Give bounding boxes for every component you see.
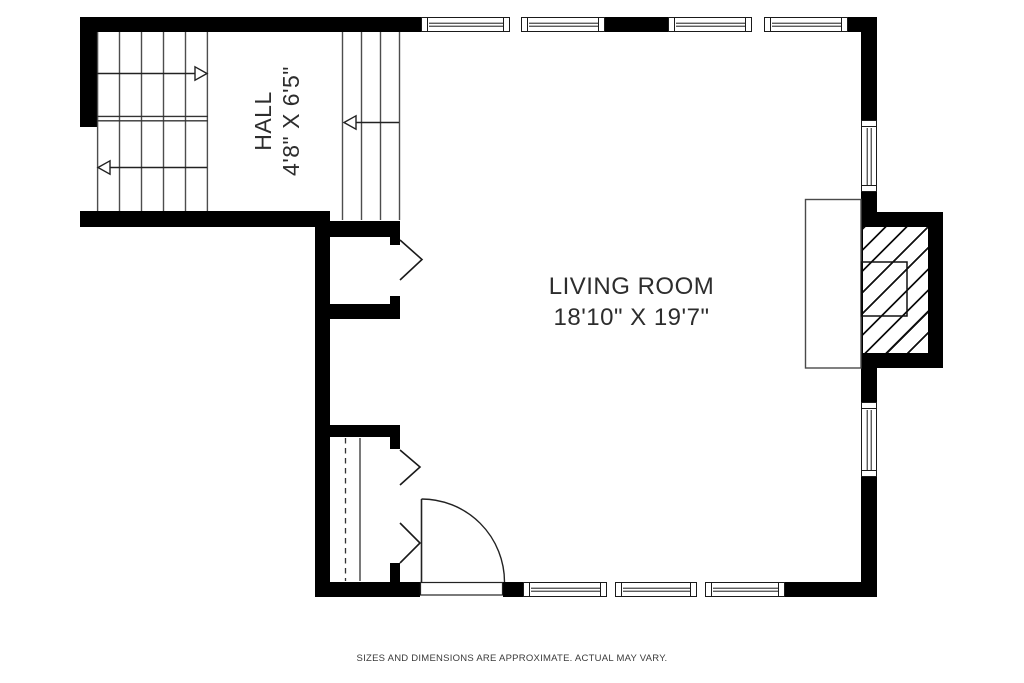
door-opening-chevrons	[400, 240, 422, 563]
floor-plan: HALL 4'8" X 6'5" LIVING ROOM 18'10" X 19…	[0, 0, 1024, 683]
living-room-label: LIVING ROOM 18'10" X 19'7"	[504, 271, 759, 333]
closet-door-chevron	[400, 450, 420, 485]
hall-name: HALL	[249, 66, 277, 176]
plan-linework	[0, 0, 1024, 683]
entry-door	[421, 499, 505, 595]
stair-arrow-head-left	[98, 161, 110, 174]
living-room-name: LIVING ROOM	[504, 271, 759, 302]
stair-arrow-head-right	[195, 67, 207, 80]
door-threshold	[421, 583, 503, 596]
living-room-dimensions: 18'10" X 19'7"	[504, 302, 759, 333]
stair-arrow-head-left	[344, 116, 356, 129]
fireplace-hearth	[806, 200, 862, 369]
disclaimer-text: SIZES AND DIMENSIONS ARE APPROXIMATE. AC…	[0, 653, 1024, 664]
fireplace-firebox	[862, 262, 908, 316]
closet-door-chevron	[400, 523, 420, 563]
hall-dimensions: 4'8" X 6'5"	[277, 66, 305, 176]
niche-opening-chevron	[400, 240, 422, 280]
door-swing-arc	[422, 499, 505, 582]
hall-room-label: HALL 4'8" X 6'5"	[249, 66, 305, 176]
